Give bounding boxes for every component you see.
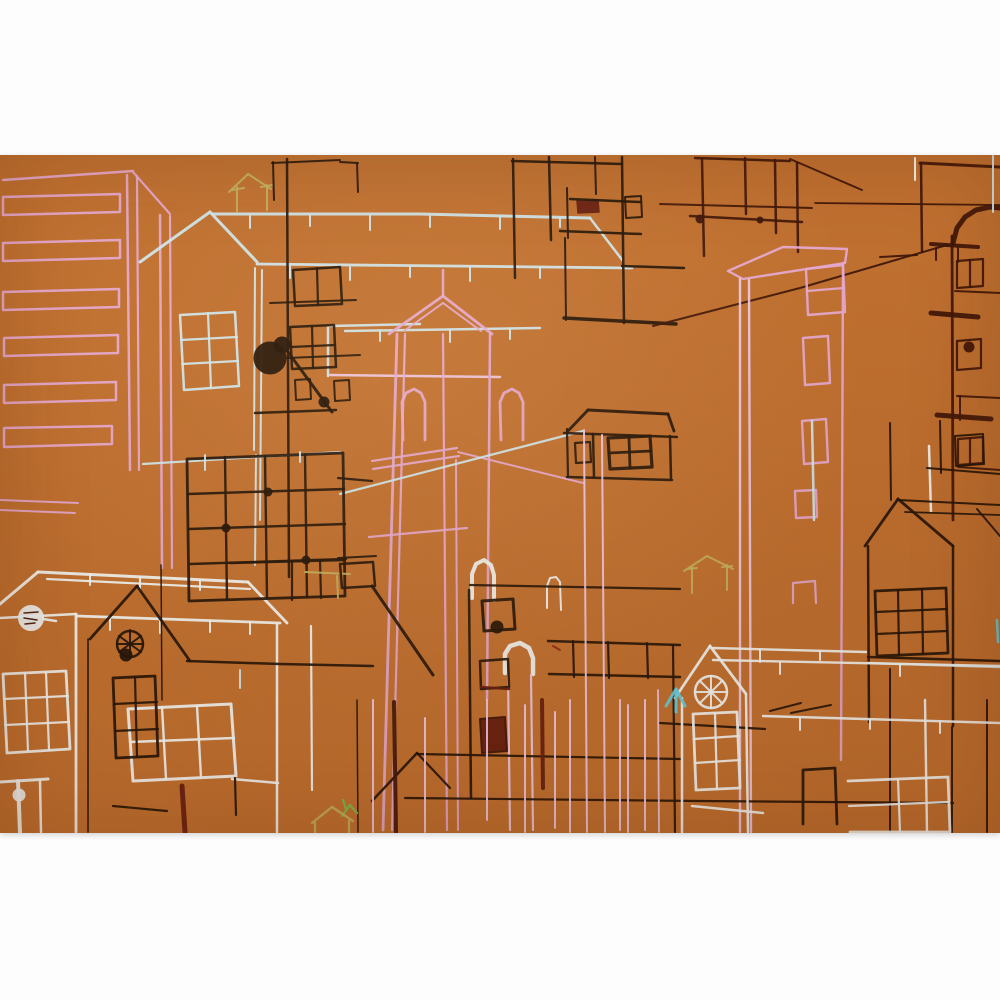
painting [0, 155, 1000, 833]
top-right-black-frames [653, 158, 1000, 326]
photo-of-painting [0, 0, 1000, 1000]
top-center-black-building [254, 157, 684, 577]
cityscape-sketch [0, 155, 1000, 833]
bottom-drip-verticals [373, 430, 659, 832]
right-black-house [865, 421, 1000, 726]
center-black-cottage [564, 410, 677, 480]
matte-top [0, 0, 1000, 155]
top-yellow-house [229, 174, 273, 212]
power-lines [143, 431, 583, 494]
matte-bottom [0, 833, 1000, 1000]
center-pink-tower [369, 270, 583, 830]
mid-yellow-house [684, 556, 733, 593]
left-striped-building [0, 171, 172, 568]
bottom-right-white-house [666, 646, 1000, 832]
top-blue-roof-lines [140, 212, 632, 565]
